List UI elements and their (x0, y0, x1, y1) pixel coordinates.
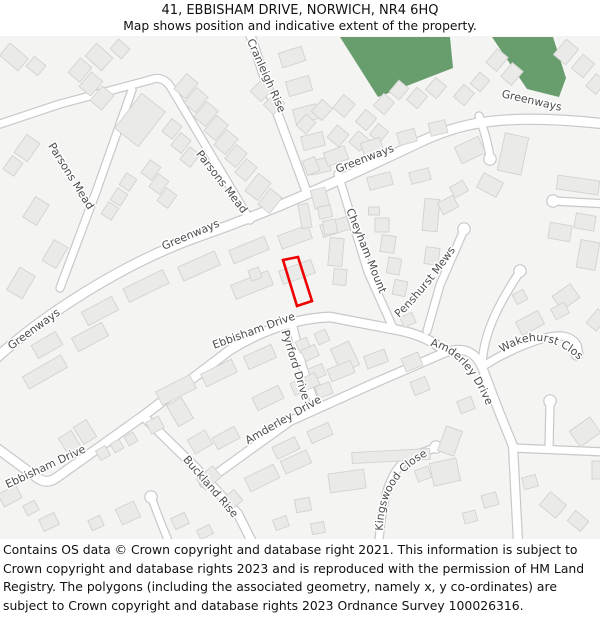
building (429, 458, 460, 486)
page-title: 41, EBBISHAM DRIVE, NORWICH, NR4 6HQ (0, 3, 600, 19)
building (592, 461, 600, 479)
building (380, 235, 396, 254)
page-subtitle: Map shows position and indicative extent… (0, 19, 600, 34)
building (369, 207, 380, 215)
building (333, 268, 347, 285)
building (375, 218, 389, 232)
header: 41, EBBISHAM DRIVE, NORWICH, NR4 6HQ Map… (0, 0, 600, 36)
building (328, 237, 344, 266)
building (392, 279, 408, 296)
building (386, 257, 402, 275)
road (513, 448, 600, 452)
building (574, 213, 596, 231)
road (554, 201, 600, 204)
building (322, 219, 337, 235)
building (311, 521, 326, 534)
building (294, 497, 311, 512)
property-map: Cranleigh RiseGreenwaysGreenwaysGreenway… (0, 36, 600, 539)
road (549, 402, 550, 449)
building (548, 222, 572, 242)
map-canvas: Cranleigh RiseGreenwaysGreenwaysGreenway… (0, 36, 600, 539)
building (317, 205, 332, 219)
copyright-notice: Contains OS data © Crown copyright and d… (0, 539, 600, 615)
